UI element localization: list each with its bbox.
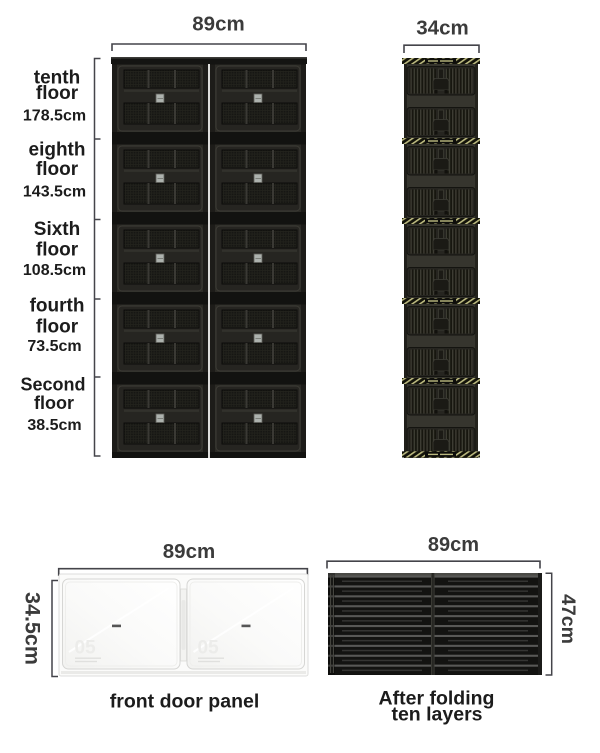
svg-text:fourth: fourth [30, 296, 85, 317]
svg-text:89cm: 89cm [163, 540, 215, 563]
svg-text:Sixth: Sixth [34, 219, 80, 240]
svg-text:floor: floor [36, 159, 79, 180]
svg-text:89cm: 89cm [428, 534, 479, 556]
svg-text:34.5cm: 34.5cm [21, 592, 45, 665]
svg-text:floor: floor [36, 83, 79, 104]
svg-text:178.5cm: 178.5cm [23, 107, 86, 124]
svg-text:108.5cm: 108.5cm [23, 262, 86, 279]
svg-text:89cm: 89cm [192, 13, 244, 36]
svg-text:ten layers: ten layers [391, 704, 482, 726]
svg-text:05: 05 [198, 638, 220, 659]
svg-text:floor: floor [36, 240, 79, 261]
svg-text:38.5cm: 38.5cm [27, 417, 81, 434]
svg-text:floor: floor [34, 393, 74, 413]
svg-text:floor: floor [36, 316, 79, 337]
svg-text:143.5cm: 143.5cm [23, 184, 86, 201]
svg-text:47cm: 47cm [557, 594, 579, 644]
svg-text:34cm: 34cm [416, 17, 468, 40]
svg-text:front door panel: front door panel [110, 691, 260, 713]
svg-text:Second: Second [20, 375, 85, 395]
svg-text:eighth: eighth [29, 140, 86, 161]
svg-text:73.5cm: 73.5cm [27, 338, 81, 355]
svg-text:05: 05 [75, 638, 97, 659]
